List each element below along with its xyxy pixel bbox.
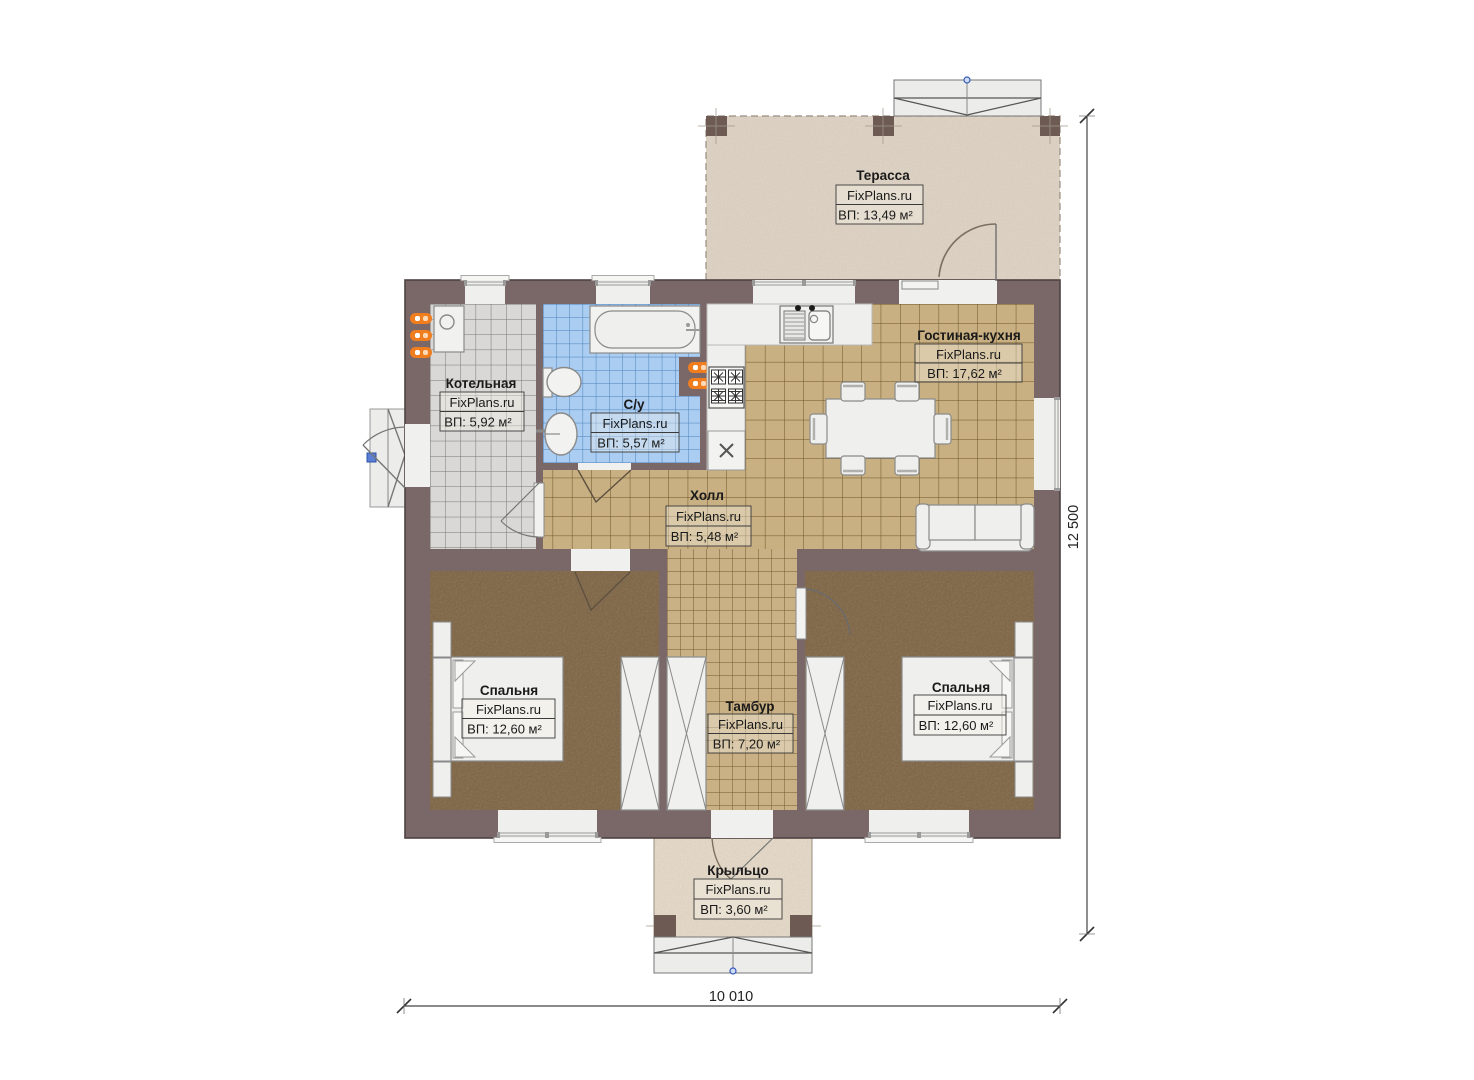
svg-text:ВП: 7,20 м²: ВП: 7,20 м² (713, 737, 781, 752)
svg-text:FixPlans.ru: FixPlans.ru (476, 702, 541, 717)
svg-text:FixPlans.ru: FixPlans.ru (602, 416, 667, 431)
svg-text:С/у: С/у (623, 397, 645, 412)
svg-text:10 010: 10 010 (709, 989, 753, 1005)
svg-text:ВП: 3,60 м²: ВП: 3,60 м² (700, 902, 768, 917)
svg-text:ВП: 17,62 м²: ВП: 17,62 м² (927, 366, 1002, 381)
svg-text:Холл: Холл (690, 488, 724, 503)
svg-text:Тамбур: Тамбур (726, 699, 775, 714)
svg-text:FixPlans.ru: FixPlans.ru (718, 717, 783, 732)
svg-text:FixPlans.ru: FixPlans.ru (449, 395, 514, 410)
svg-text:Спальня: Спальня (480, 683, 538, 698)
svg-text:Котельная: Котельная (446, 376, 517, 391)
svg-text:Спальня: Спальня (932, 680, 990, 695)
svg-text:ВП: 5,92 м²: ВП: 5,92 м² (444, 415, 512, 430)
svg-text:ВП: 5,48 м²: ВП: 5,48 м² (671, 529, 739, 544)
svg-text:ВП: 13,49 м²: ВП: 13,49 м² (838, 208, 913, 223)
svg-text:FixPlans.ru: FixPlans.ru (705, 882, 770, 897)
svg-text:FixPlans.ru: FixPlans.ru (847, 188, 912, 203)
svg-text:Гостиная-кухня: Гостиная-кухня (917, 328, 1020, 343)
svg-text:Крыльцо: Крыльцо (707, 863, 768, 878)
svg-text:ВП: 12,60 м²: ВП: 12,60 м² (919, 718, 994, 733)
svg-text:FixPlans.ru: FixPlans.ru (676, 509, 741, 524)
svg-text:12 500: 12 500 (1066, 505, 1082, 549)
svg-text:FixPlans.ru: FixPlans.ru (927, 698, 992, 713)
svg-text:Терасса: Терасса (856, 168, 910, 183)
svg-text:ВП: 5,57 м²: ВП: 5,57 м² (597, 436, 665, 451)
svg-text:FixPlans.ru: FixPlans.ru (936, 347, 1001, 362)
svg-text:ВП: 12,60 м²: ВП: 12,60 м² (467, 722, 542, 737)
